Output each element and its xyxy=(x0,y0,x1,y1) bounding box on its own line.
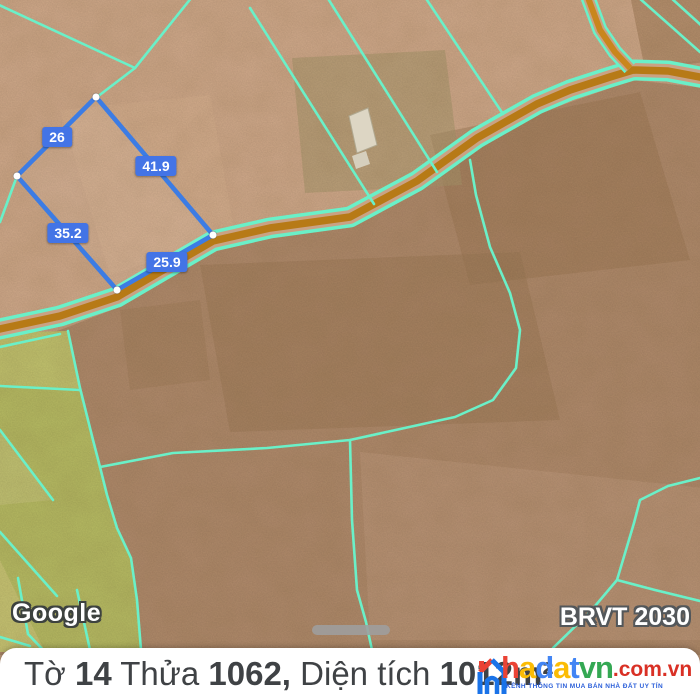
wm-tagline: KÊNH THÔNG TIN MUA BÁN NHÀ ĐẤT UY TÍN xyxy=(506,683,663,690)
info-segment: Tờ xyxy=(24,655,75,692)
parcel-vertex[interactable] xyxy=(113,286,121,294)
parcel-vertex[interactable] xyxy=(209,231,217,239)
plan-badge: BRVT 2030 xyxy=(560,603,690,632)
wm-letter: a xyxy=(519,650,535,685)
google-logo: Google xyxy=(12,599,101,628)
nhadatvn-watermark: hadatvn.com.vn KÊNH THÔNG TIN MUA BÁN NH… xyxy=(474,648,700,700)
info-segment: Diện tích xyxy=(291,655,440,692)
info-sheet-number: 14 xyxy=(75,655,112,692)
info-parcel-number: 1062, xyxy=(208,655,291,692)
wm-letter: a xyxy=(553,650,569,685)
sheet-drag-handle[interactable] xyxy=(312,625,390,635)
measurement-label: 25.9 xyxy=(146,252,187,272)
wm-letter: n xyxy=(595,650,613,685)
info-segment: Thửa xyxy=(112,655,209,692)
parcel-vertex[interactable] xyxy=(13,172,21,180)
wm-letter: d xyxy=(535,650,553,685)
measurement-label: 26 xyxy=(42,127,72,147)
measurement-label: 41.9 xyxy=(135,156,176,176)
wm-letter: v xyxy=(579,650,595,685)
wm-domain-suffix: .com.vn xyxy=(613,658,692,681)
satellite-map[interactable] xyxy=(0,0,700,700)
parcel-viewer-screen: 26 41.9 35.2 25.9 Google BRVT 2030 Tờ 14… xyxy=(0,0,700,700)
measurement-label: 35.2 xyxy=(47,223,88,243)
parcel-vertex[interactable] xyxy=(92,93,100,101)
wm-letter: t xyxy=(569,650,578,685)
wm-letter: h xyxy=(501,650,519,685)
